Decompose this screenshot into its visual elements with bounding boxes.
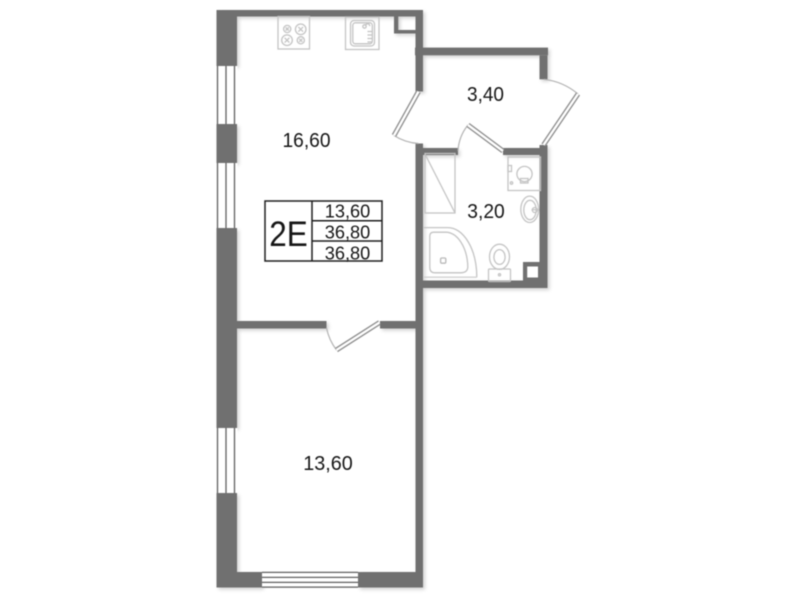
svg-text:16,60: 16,60 bbox=[283, 130, 331, 152]
svg-text:2Е: 2Е bbox=[269, 215, 308, 254]
svg-text:13,60: 13,60 bbox=[325, 202, 371, 222]
svg-text:36,80: 36,80 bbox=[325, 223, 371, 243]
svg-text:36,80: 36,80 bbox=[325, 243, 371, 263]
svg-text:13,60: 13,60 bbox=[303, 453, 353, 475]
svg-text:3,40: 3,40 bbox=[467, 84, 504, 106]
svg-text:3,20: 3,20 bbox=[467, 201, 505, 223]
